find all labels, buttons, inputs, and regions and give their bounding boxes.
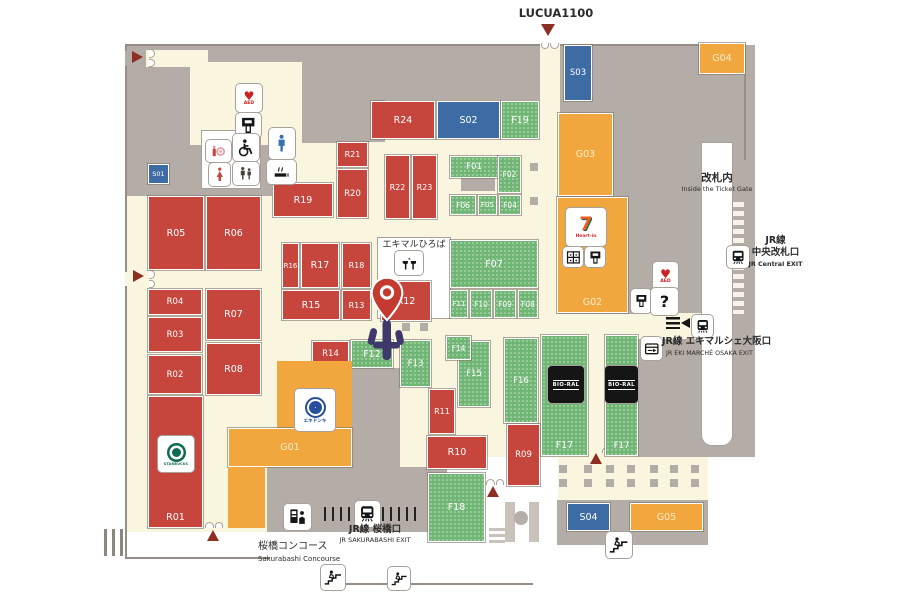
block-label-S01: S01 [152, 170, 164, 178]
family-toilet-icon [233, 162, 259, 185]
aed-label: AED [660, 280, 671, 285]
block-label-F19: F19 [511, 115, 529, 126]
map-block-R02: R02 [148, 355, 202, 394]
map-block-F10: F10 [470, 290, 492, 318]
block-label-F08: F08 [521, 300, 535, 309]
ticket-gate-machine-icon [641, 337, 662, 360]
pillar-15 [530, 163, 538, 171]
block-label-F07: F07 [485, 259, 503, 270]
boundary-bottom-2 [343, 583, 533, 585]
aed-label: AED [244, 102, 255, 107]
block-label-F01: F01 [466, 162, 482, 172]
block-label-R21: R21 [345, 150, 361, 159]
bioral-text: BIO-RAL [608, 380, 635, 390]
left-gate-bars [104, 529, 124, 556]
womens-toilet-icon [209, 163, 230, 186]
bioral-logo-1: BIO-RAL [548, 366, 584, 403]
aed-icon: ♥AED [236, 84, 262, 112]
map-block-F06: F06 [450, 195, 476, 215]
floor-map: R05R06R04R07R03R02R08R01R19R21R20R22R23R… [0, 0, 900, 600]
current-location-pin [370, 276, 404, 322]
map-block-F19: F19 [501, 101, 539, 139]
label-5: JR線 [748, 236, 803, 247]
map-block-R18: R18 [342, 243, 371, 288]
block-label-F06: F06 [456, 201, 470, 210]
entrance-arrow-south-1 [487, 486, 499, 497]
map-block-F16: F16 [504, 338, 538, 423]
pillar-16 [530, 197, 538, 205]
train-icon-central [727, 246, 749, 268]
label-1: LUCUA1100 [516, 7, 596, 20]
fountain-icon [395, 251, 423, 275]
pillar-6 [670, 465, 678, 473]
stairwell-rail-right [529, 502, 539, 542]
ekidonki-logo: エキドンキ [295, 389, 335, 431]
gate-bars-icon [666, 317, 680, 329]
stairs-icon-2 [388, 567, 410, 590]
block-label-F17: F17 [614, 441, 630, 451]
pillar-3 [606, 465, 614, 473]
block-label-R09: R09 [515, 450, 532, 460]
boundary-left-2 [125, 66, 127, 272]
aed-heart-glyph: ♥ [244, 90, 255, 102]
mens-toilet-icon [269, 128, 295, 159]
map-block-R17: R17 [301, 243, 339, 288]
map-block-R08: R08 [206, 343, 261, 395]
map-block-R16: R16 [282, 243, 299, 288]
sakurabashi-gate-bars-left [324, 507, 354, 521]
block-label-R07: R07 [224, 309, 243, 320]
label-12: 桜橋コンコース [258, 541, 368, 553]
block-label-R20: R20 [344, 189, 361, 199]
pillar-1 [559, 465, 567, 473]
left-arrow-icon [681, 318, 690, 328]
entrance-arrow-sakurabashi [207, 530, 219, 541]
label-7: JR Central EXIT [748, 261, 803, 268]
pillar-13 [670, 479, 678, 487]
stairs-icon-1 [321, 565, 345, 590]
map-block-R20: R20 [337, 169, 368, 218]
block-label-R05: R05 [167, 228, 186, 239]
bioral-logo-2: BIO-RAL [605, 366, 638, 403]
block-label-S04: S04 [579, 512, 597, 523]
map-block-F18: F18 [428, 473, 485, 542]
map-block-F01: F01 [450, 156, 498, 178]
entrance-arch-4 [205, 522, 223, 530]
block-label-R01: R01 [166, 512, 185, 523]
starbucks-text: STARBUCKS [164, 462, 188, 466]
map-block-G04: G04 [699, 43, 745, 74]
pillar-9 [584, 479, 592, 487]
aed-heart-glyph: ♥ [660, 268, 671, 280]
map-block-R22: R22 [385, 155, 410, 219]
right-lower-bg [708, 457, 755, 532]
boundary-left-3 [125, 286, 127, 559]
block-label-G03: G03 [576, 149, 595, 160]
label-4: Inside the Ticket Gate [672, 186, 762, 193]
block-label-S02: S02 [459, 115, 477, 126]
wheelchair-icon [233, 134, 259, 161]
map-block-S02: S02 [437, 101, 500, 139]
map-block-G01: G01 [228, 428, 352, 467]
entrance-arrow-left-top [132, 51, 143, 63]
train-icon-exit [692, 315, 713, 337]
label-2: エキマルひろば [377, 240, 451, 250]
stairwell-pillar [514, 511, 528, 525]
map-block-G01 [228, 467, 265, 528]
block-label-F15: F15 [466, 369, 482, 379]
block-label-R19: R19 [294, 195, 313, 206]
boundary-bottom-1 [125, 557, 270, 559]
label-13: Sakurabashi Concourse [258, 555, 368, 563]
block-label-R08: R08 [224, 364, 243, 375]
block-label-R18: R18 [349, 261, 365, 270]
block-label-R24: R24 [394, 115, 413, 126]
block-label-R11: R11 [434, 407, 450, 416]
pillar-11 [627, 479, 635, 487]
coin-locker-icon [563, 247, 583, 267]
map-block-R04: R04 [148, 289, 202, 315]
pillar-2 [584, 465, 592, 473]
block-label-F17: F17 [556, 440, 574, 451]
map-block-F09: F09 [494, 290, 516, 318]
map-block-R10: R10 [427, 436, 487, 469]
block-label-F10: F10 [474, 300, 488, 309]
block-label-F11: F11 [453, 300, 466, 308]
boundary-top-1 [125, 44, 540, 46]
aed-icon-2: ♥AED [653, 262, 678, 290]
block-label-R23: R23 [417, 183, 433, 192]
map-block-R19: R19 [273, 183, 333, 217]
block-label-R22: R22 [390, 183, 406, 192]
block-label-R02: R02 [167, 370, 184, 380]
entrance-arch-1 [147, 49, 155, 67]
block-label-R04: R04 [167, 297, 184, 307]
map-block-F11: F11 [450, 290, 468, 318]
label-9: JR EKI MARCHÉ OSAKA EXIT [666, 350, 806, 357]
sakurabashi-gate-bars-right [382, 507, 421, 521]
pillar-14 [691, 479, 699, 487]
block-label-F02: F02 [503, 170, 517, 179]
backarea-f01 [461, 178, 495, 191]
entrance-arch-2 [147, 270, 155, 288]
map-block-R23: R23 [412, 155, 437, 219]
label-8: JR線 エキマルシェ大阪口 [662, 337, 802, 348]
seven-glyph: 7 [579, 215, 592, 234]
pillar-18 [420, 323, 428, 331]
map-block-R09: R09 [507, 424, 540, 486]
map-block-R05: R05 [148, 196, 204, 270]
ticket-machine-icon [284, 504, 311, 530]
heartin-text: Heart-in [576, 234, 597, 239]
map-block-S03: S03 [564, 45, 592, 101]
label-10: JR線 桜橋口 [330, 525, 420, 536]
block-label-F16: F16 [513, 376, 529, 386]
map-block-R21: R21 [337, 142, 368, 167]
block-label-F05: F05 [481, 201, 494, 209]
block-label-G04: G04 [712, 53, 731, 64]
block-label-R14: R14 [322, 349, 339, 359]
block-label-S03: S03 [570, 68, 586, 78]
pillar-8 [559, 479, 567, 487]
pillar-12 [650, 479, 658, 487]
entrance-arch-3 [541, 41, 559, 49]
landmark-statue [366, 316, 406, 362]
block-label-G05: G05 [657, 512, 676, 523]
entrance-arrow-south-2 [590, 453, 602, 464]
label-3: 改札内 [687, 172, 747, 184]
stairwell-step-2 [489, 534, 505, 537]
backarea-center [352, 368, 400, 473]
block-label-R15: R15 [302, 300, 321, 311]
map-block-F08: F08 [518, 290, 538, 318]
boundary-left-1 [125, 44, 127, 51]
smoking-area-icon [267, 160, 296, 184]
backarea-a [302, 100, 337, 143]
stairwell-rail-left [505, 502, 515, 542]
block-label-R10: R10 [448, 447, 467, 458]
map-block-F04: F04 [499, 195, 521, 215]
powder-room-icon [206, 140, 231, 162]
entrance-arrow-left-mid [133, 270, 144, 282]
block-label-R03: R03 [167, 330, 184, 340]
starbucks-logo: STARBUCKS [158, 436, 194, 472]
pillar-5 [650, 465, 658, 473]
map-block-F02: F02 [498, 156, 521, 193]
block-label-F13: F13 [408, 359, 424, 369]
starbucks-ring [167, 443, 186, 462]
map-block-S04: S04 [567, 503, 610, 531]
block-label-G01: G01 [280, 442, 299, 453]
block-label-R06: R06 [224, 228, 243, 239]
stairwell-step-3 [489, 540, 505, 543]
map-block-R24: R24 [371, 101, 435, 139]
map-block-F05: F05 [478, 195, 497, 215]
map-block-S01: S01 [148, 164, 169, 184]
information-icon: ? [651, 288, 678, 315]
pillar-10 [606, 479, 614, 487]
atm-icon-3 [631, 289, 651, 313]
map-block-R15: R15 [282, 290, 340, 320]
block-label-R16: R16 [284, 262, 298, 270]
block-label-G02: G02 [583, 297, 602, 308]
map-block-R07: R07 [206, 289, 261, 340]
map-block-G03: G03 [558, 113, 613, 196]
map-block-G05: G05 [630, 503, 703, 531]
label-6: 中央改札口 [748, 248, 803, 259]
block-label-F14: F14 [452, 344, 466, 353]
stairwell-step-1 [489, 528, 505, 531]
map-block-F14: F14 [446, 336, 471, 360]
ekidonki-text: エキドンキ [304, 418, 327, 424]
ekidonki-ring [305, 397, 326, 418]
map-block-R03: R03 [148, 317, 202, 352]
stairs-icon-3 [606, 532, 632, 558]
pillar-4 [627, 465, 635, 473]
seven-eleven-logo: 7Heart-in [566, 208, 606, 246]
map-block-F07: F07 [450, 240, 538, 288]
block-label-R17: R17 [311, 260, 330, 271]
map-block-R11: R11 [429, 389, 455, 434]
atm-icon-2 [585, 247, 605, 267]
pillar-7 [691, 465, 699, 473]
block-label-F18: F18 [448, 502, 466, 513]
question-glyph: ? [660, 294, 669, 310]
block-label-R13: R13 [349, 301, 365, 310]
entrance-arrow-lucua [541, 24, 555, 36]
bioral-text: BIO-RAL [553, 380, 580, 390]
block-label-F09: F09 [498, 300, 512, 309]
block-label-F04: F04 [503, 201, 517, 210]
map-block-R06: R06 [206, 196, 261, 270]
